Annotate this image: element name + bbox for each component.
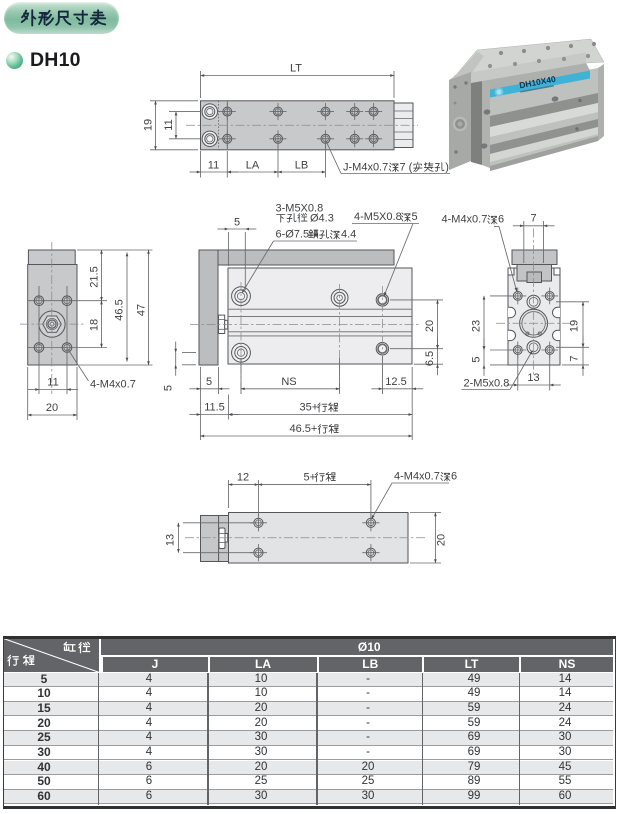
- svg-text:18: 18: [89, 319, 101, 331]
- svg-text:4-M4x0.7: 4-M4x0.7: [394, 471, 440, 483]
- svg-text:11.5: 11.5: [204, 402, 225, 414]
- svg-text:6: 6: [451, 471, 457, 483]
- svg-text:Ø4.3: Ø4.3: [310, 212, 334, 224]
- svg-text:21.5: 21.5: [89, 266, 101, 287]
- svg-text:5: 5: [234, 217, 240, 229]
- svg-text:5: 5: [163, 385, 175, 391]
- svg-text:46.5+: 46.5+: [290, 423, 318, 435]
- svg-text:5: 5: [471, 356, 483, 362]
- svg-text:2-M5x0.8: 2-M5x0.8: [464, 378, 510, 390]
- svg-text:4-M4x0.7: 4-M4x0.7: [442, 214, 488, 226]
- svg-text:47: 47: [136, 304, 148, 316]
- svg-text:4-M5X0.8: 4-M5X0.8: [354, 211, 402, 223]
- svg-text:6-Ø7.5: 6-Ø7.5: [276, 229, 310, 241]
- svg-text:7 (: 7 (: [400, 162, 413, 174]
- svg-text:11: 11: [208, 160, 219, 172]
- svg-text:7: 7: [530, 213, 536, 225]
- svg-text:11: 11: [163, 119, 175, 130]
- svg-text:4.4: 4.4: [341, 229, 356, 241]
- svg-text:6: 6: [498, 214, 504, 226]
- svg-text:35+: 35+: [300, 402, 319, 414]
- svg-text:13: 13: [165, 534, 177, 546]
- svg-text:12.5: 12.5: [385, 376, 406, 388]
- svg-text:5: 5: [412, 211, 418, 223]
- svg-text:5: 5: [206, 376, 212, 388]
- svg-text:6.5: 6.5: [424, 351, 436, 366]
- svg-text:): ): [445, 162, 449, 174]
- svg-text:11: 11: [47, 377, 58, 389]
- svg-text:23: 23: [471, 320, 483, 332]
- svg-text:5+: 5+: [304, 472, 317, 484]
- svg-text:13: 13: [527, 372, 539, 384]
- svg-text:20: 20: [436, 534, 448, 546]
- svg-text:4-M4x0.7: 4-M4x0.7: [90, 379, 136, 391]
- svg-text:LA: LA: [246, 160, 260, 172]
- svg-text:46.5: 46.5: [114, 299, 126, 320]
- svg-text:LT: LT: [290, 63, 302, 75]
- svg-text:J-M4x0.7: J-M4x0.7: [343, 162, 388, 174]
- svg-text:19: 19: [569, 320, 581, 332]
- svg-text:12: 12: [237, 472, 249, 484]
- svg-text:LB: LB: [295, 160, 308, 172]
- svg-text:7: 7: [569, 355, 581, 361]
- svg-text:20: 20: [424, 320, 436, 332]
- svg-text:19: 19: [143, 119, 155, 131]
- svg-text:NS: NS: [281, 376, 296, 388]
- svg-text:20: 20: [46, 402, 58, 414]
